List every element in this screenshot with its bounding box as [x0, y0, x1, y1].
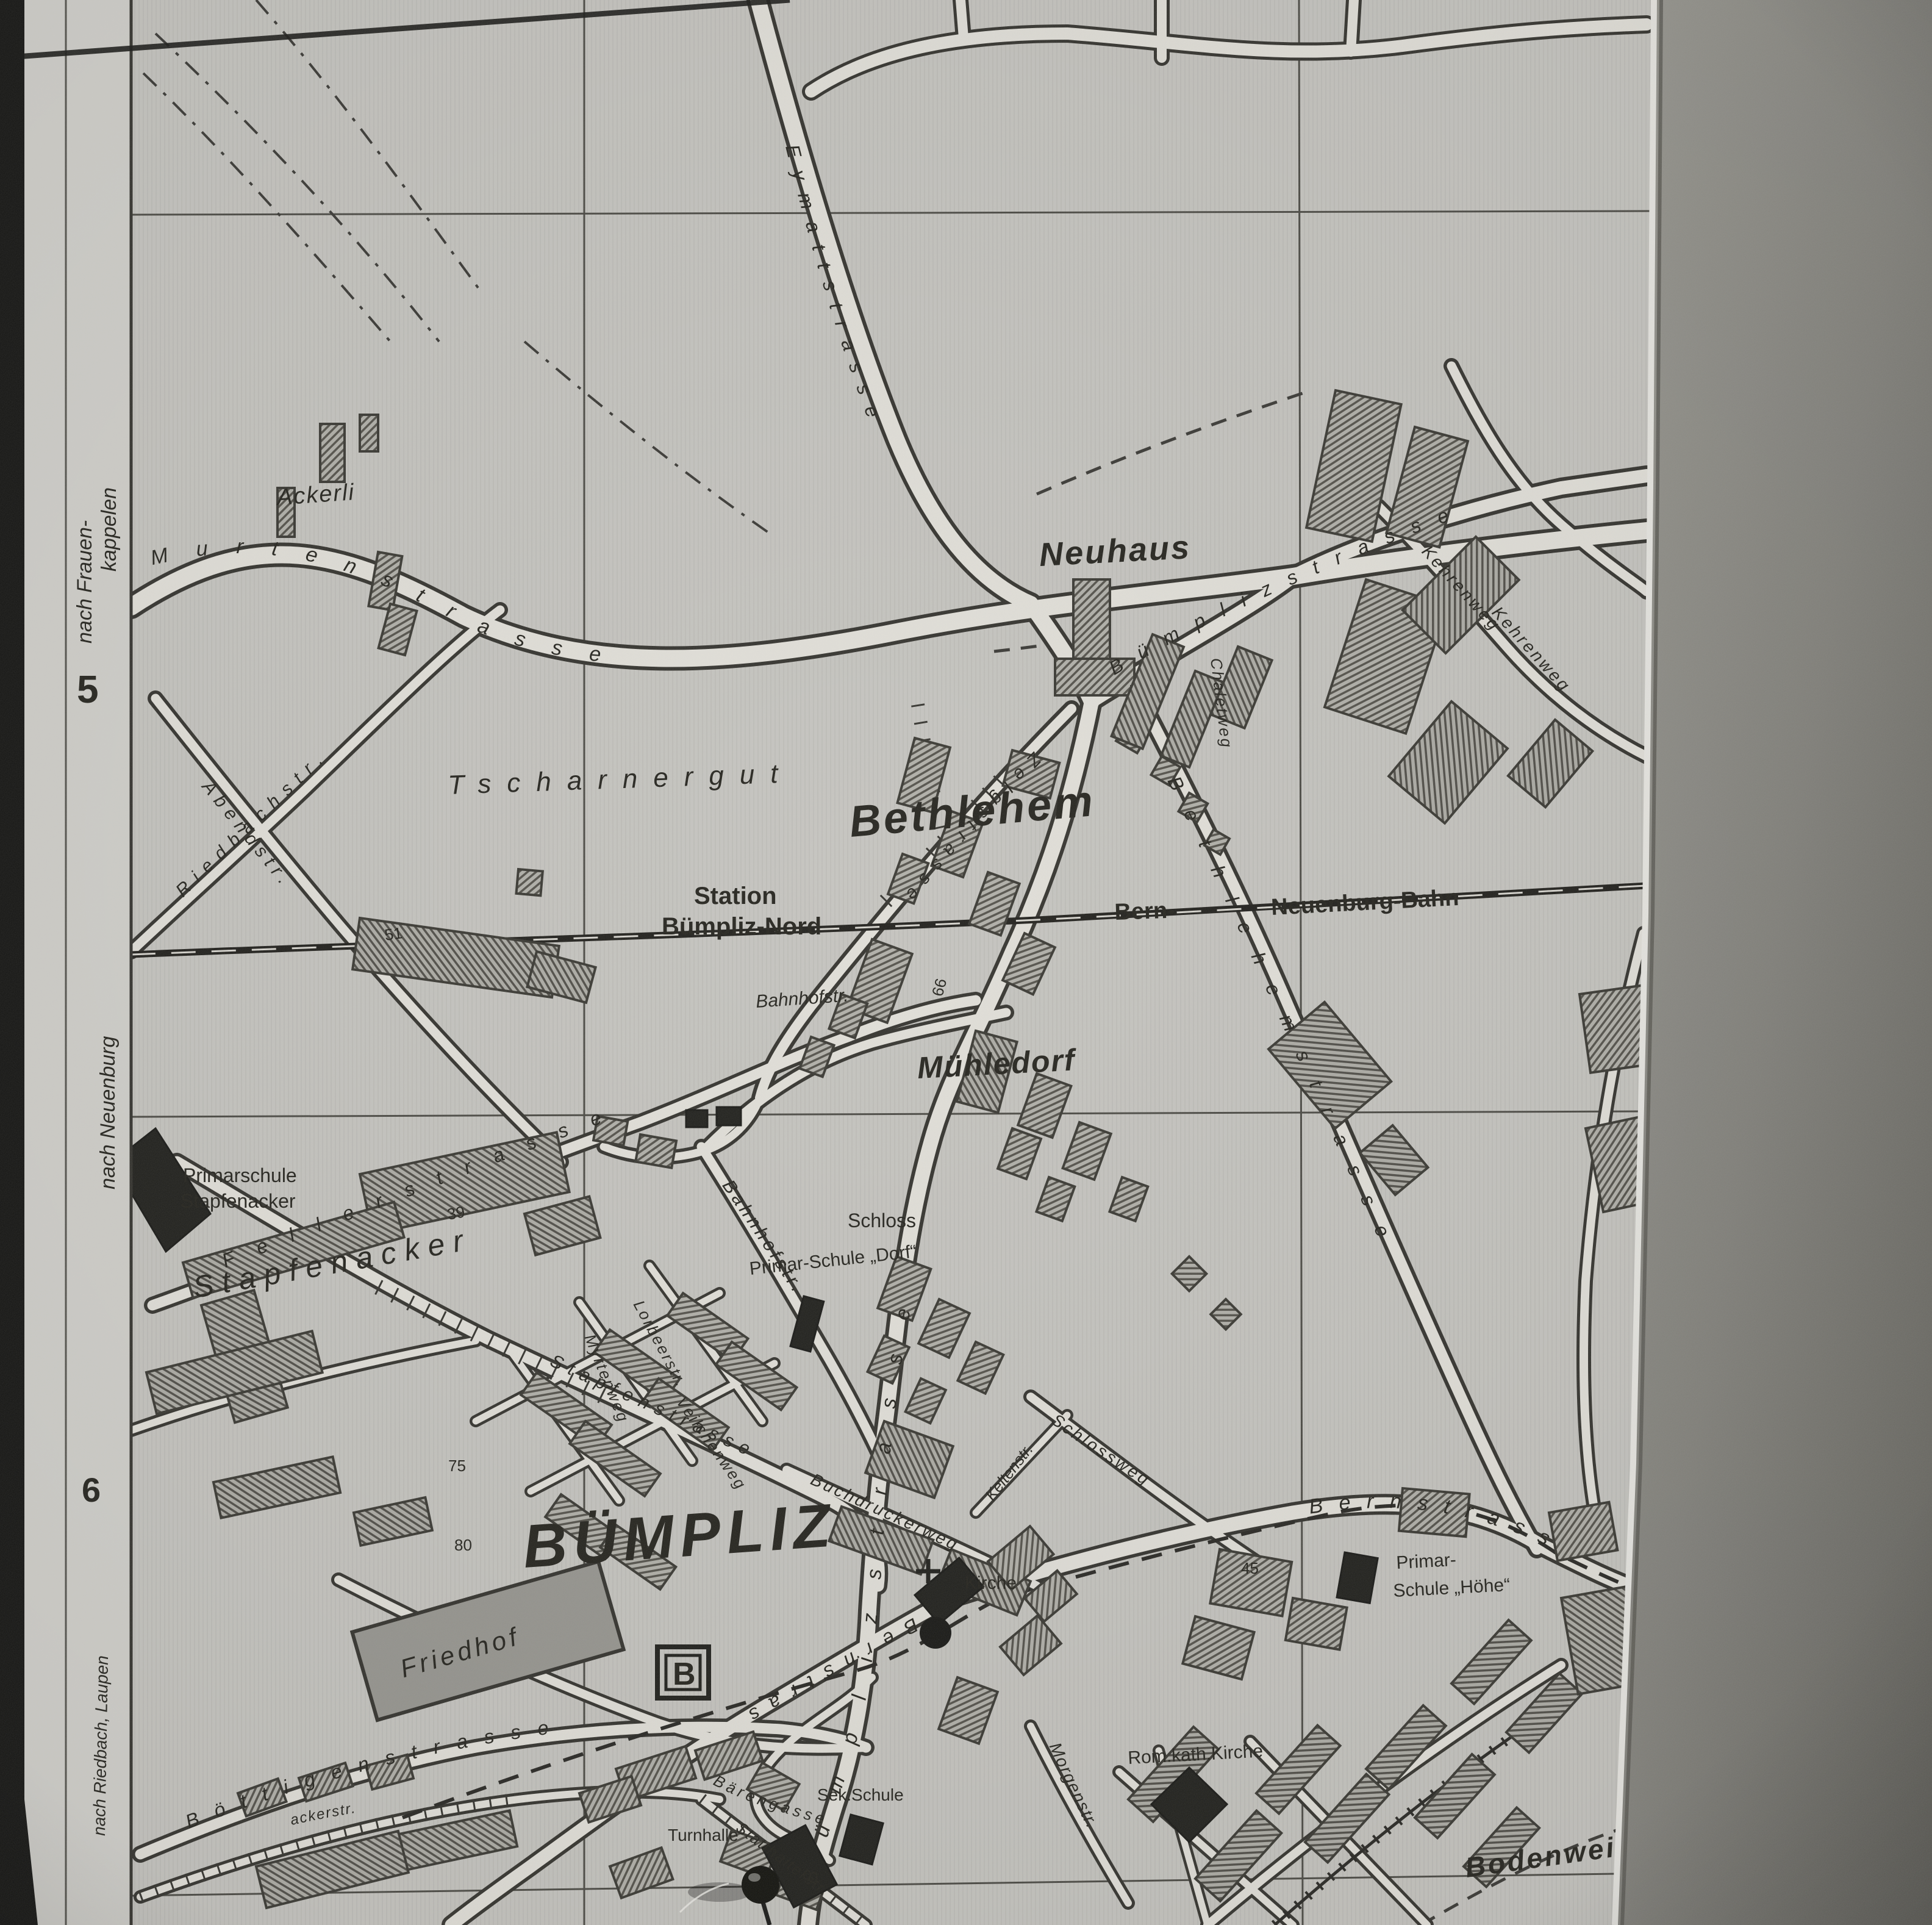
map-photo-svg: Friedhof B BÜMPLIZ Bethlehem Neuhaus Müh…: [0, 0, 1932, 1925]
photographed-map: Friedhof B BÜMPLIZ Bethlehem Neuhaus Müh…: [0, 0, 1932, 1925]
film-grain-overlay: [0, 0, 1932, 1925]
